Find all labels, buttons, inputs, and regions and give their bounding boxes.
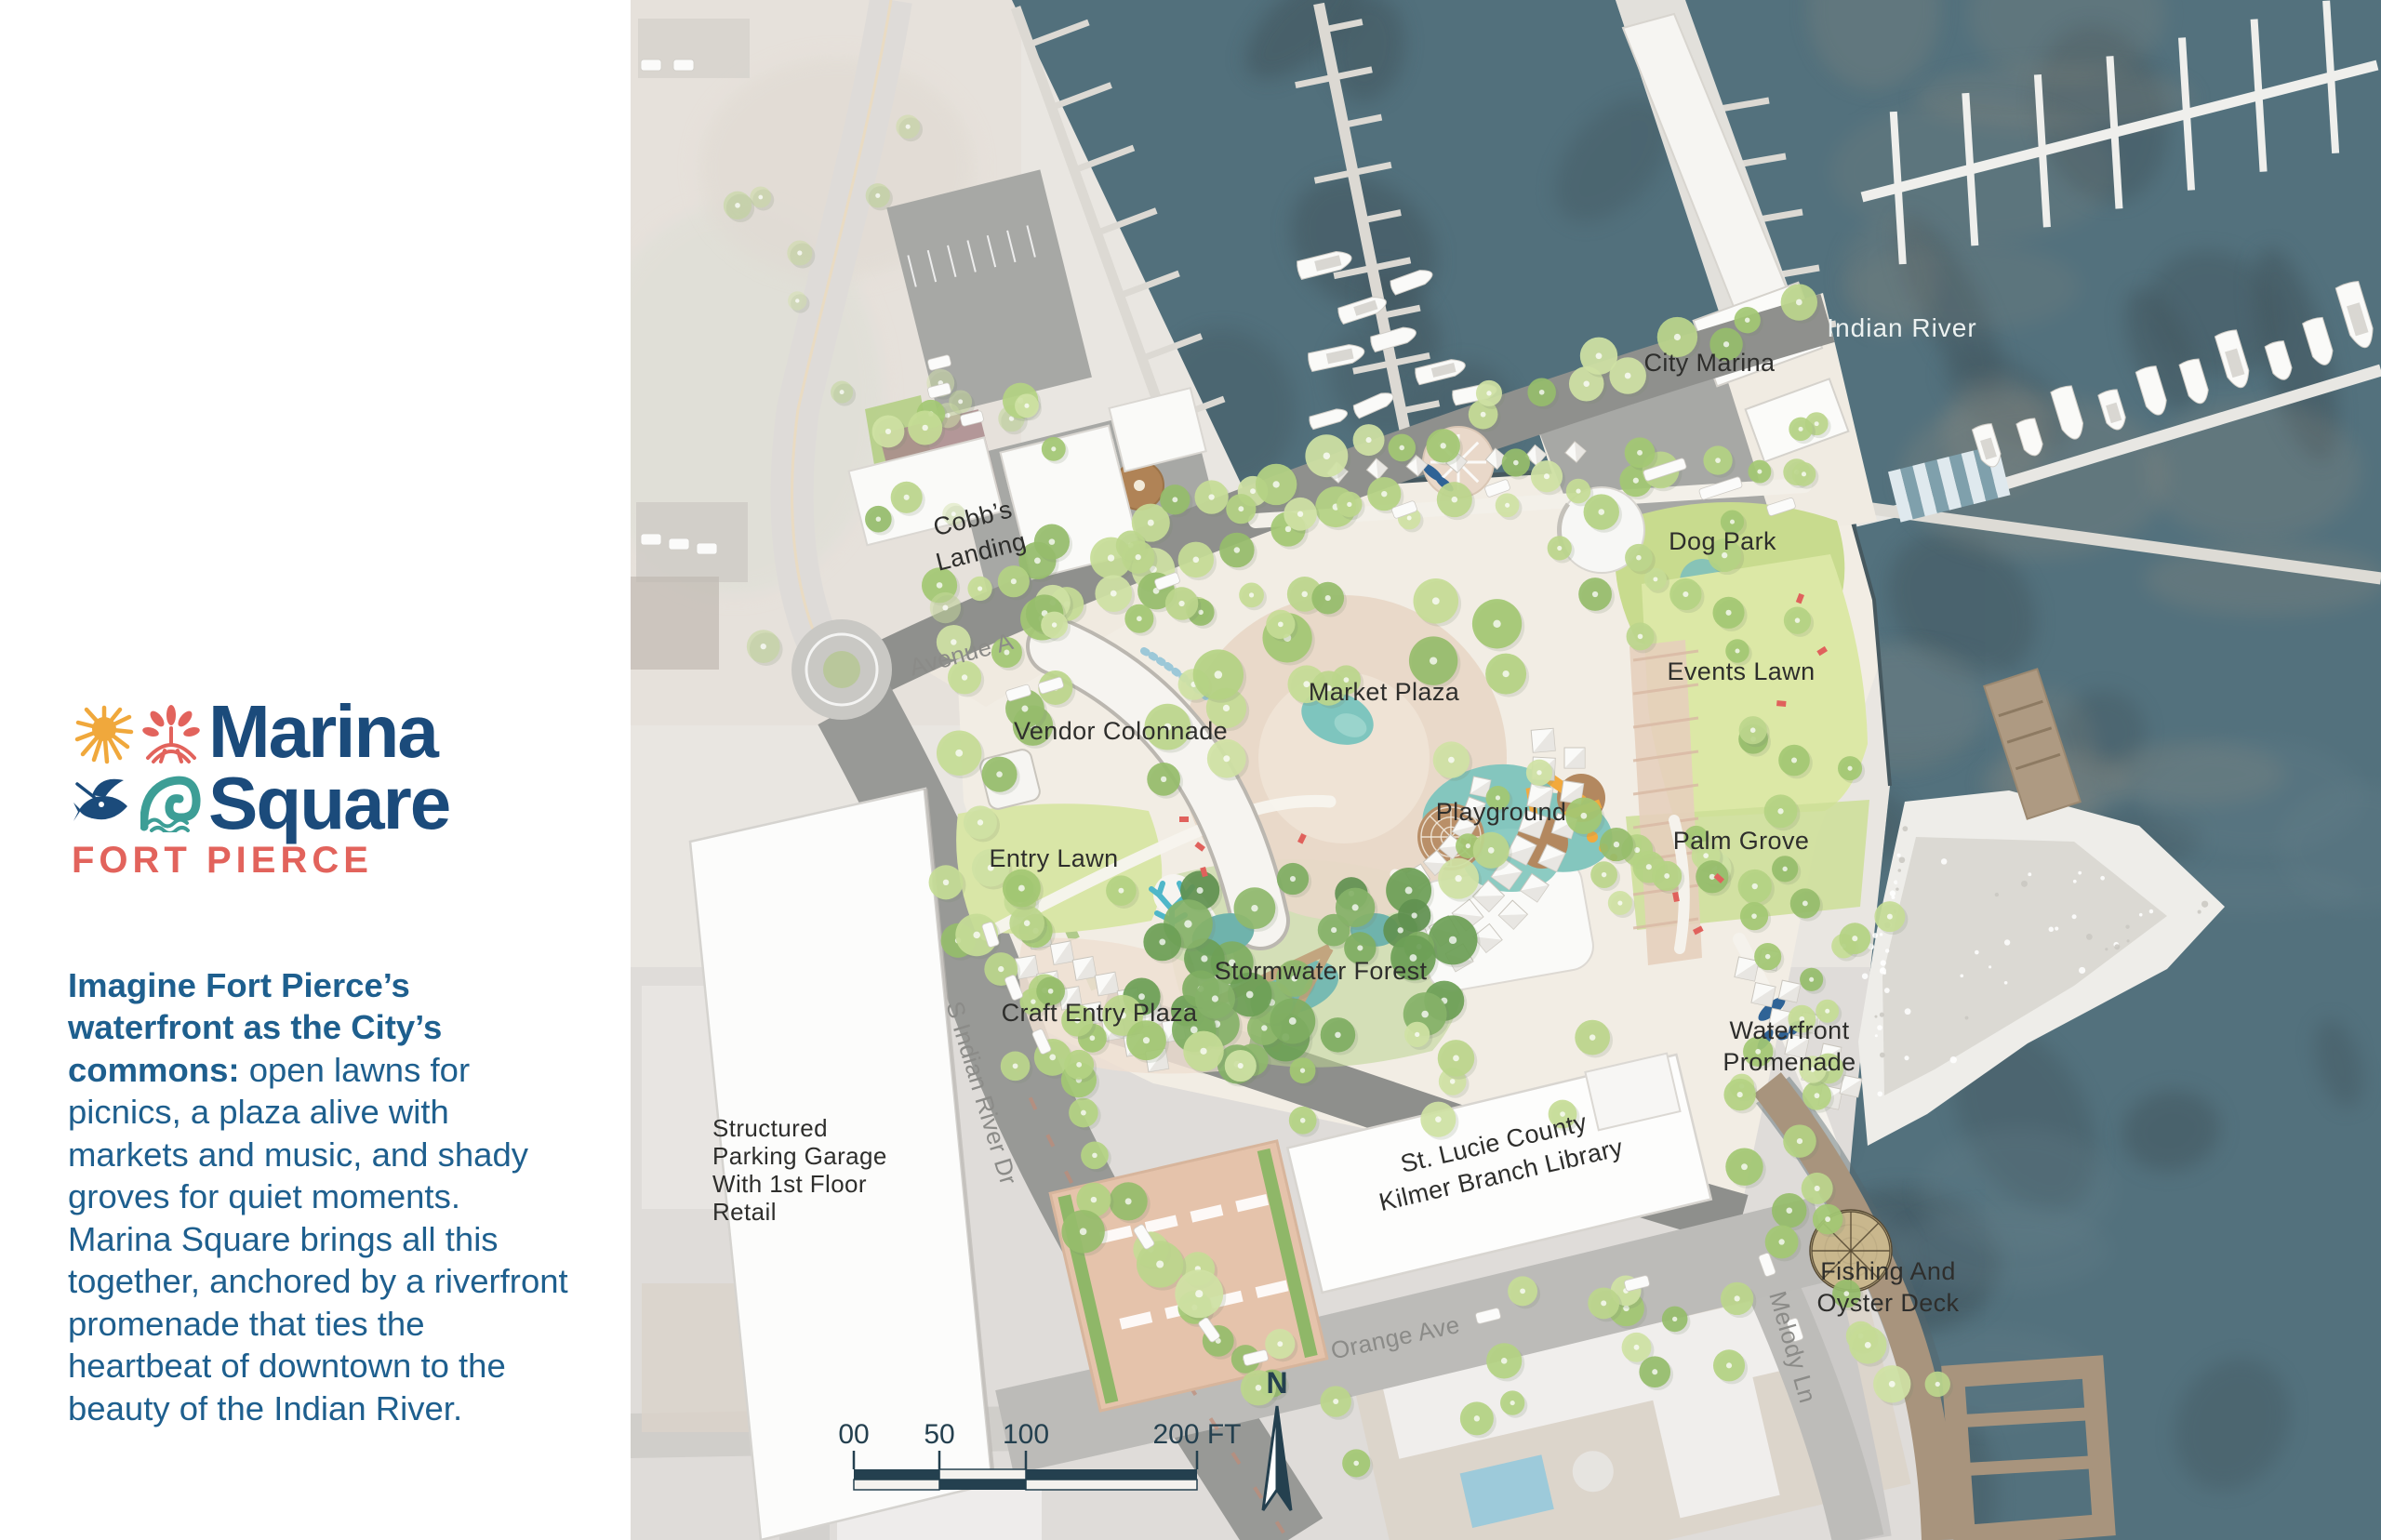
palm-grove-label: Palm Grove (1673, 827, 1810, 855)
sailfish-icon (73, 771, 135, 832)
brand-name-line1: Marina (208, 696, 449, 767)
indian-river-label: Indian River (1827, 313, 1976, 342)
vendor-colonnade-label: Vendor Colonnade (1014, 717, 1228, 745)
brand-name: Marina Square (208, 696, 449, 839)
scale-tick-3: 200 FT (1152, 1419, 1241, 1450)
playground-label: Playground (1436, 798, 1567, 826)
city-marina-label: City Marina (1644, 349, 1776, 377)
craft-entry-plaza-label: Craft Entry Plaza (1002, 999, 1198, 1027)
brand-name-line2: Square (208, 767, 449, 839)
scale-tick-2: 100 (1003, 1419, 1049, 1450)
brand-subtitle: FORT PIERCE (72, 840, 373, 882)
sun-icon (73, 704, 135, 765)
brand-logo (73, 704, 204, 836)
dog-park-label: Dog Park (1669, 527, 1776, 555)
site-plan-map: Indian RiverCity MarinaDog ParkCobb’sLan… (631, 0, 2381, 1540)
north-label: N (1266, 1366, 1287, 1400)
description-body: open lawns for picnics, a plaza alive wi… (68, 1051, 568, 1427)
stormwater-forest-label: Stormwater Forest (1215, 957, 1428, 985)
site-plan-page: Marina Square FORT PIERCE Imagine Fort P… (0, 0, 2381, 1540)
scale-tick-1: 50 (924, 1419, 954, 1450)
mangrove-icon (140, 704, 202, 765)
events-lawn-label: Events Lawn (1668, 657, 1816, 685)
site-plan-svg: Indian RiverCity MarinaDog ParkCobb’sLan… (631, 0, 2381, 1540)
left-info-panel: Marina Square FORT PIERCE Imagine Fort P… (0, 0, 631, 1540)
market-plaza-label: Market Plaza (1309, 678, 1460, 706)
entry-lawn-label: Entry Lawn (989, 844, 1118, 872)
scale-tick-0: 00 (838, 1419, 869, 1450)
project-description: Imagine Fort Pierce’s waterfront as the … (68, 964, 570, 1430)
wave-icon (140, 771, 202, 832)
